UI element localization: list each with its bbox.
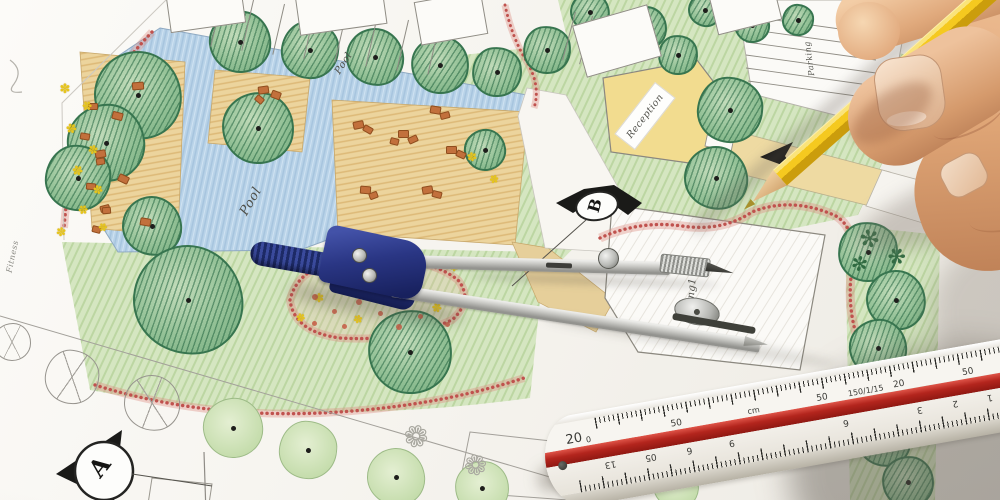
tree-center-dot bbox=[103, 140, 109, 146]
tree-center-dot bbox=[372, 54, 377, 59]
tree-center-dot bbox=[393, 474, 398, 479]
tree-outline-icon bbox=[121, 372, 183, 434]
tree-center-dot bbox=[479, 485, 484, 490]
tree-center-dot bbox=[230, 425, 235, 430]
yellow-flower-icon: ✽ bbox=[55, 225, 67, 239]
ruler-scale-number: 9 bbox=[728, 437, 735, 448]
tree-center-dot bbox=[255, 125, 260, 130]
furniture-icon bbox=[431, 190, 442, 199]
tree-center-dot bbox=[702, 7, 707, 12]
tree-outline-icon bbox=[0, 323, 31, 361]
tree-center-dot bbox=[893, 297, 898, 302]
ruler-scale-number: 6 bbox=[842, 417, 849, 428]
yellow-flower-icon: ✽ bbox=[292, 311, 306, 325]
white-flower-icon: ❁ bbox=[400, 420, 432, 455]
white-flower-icon: ❁ bbox=[462, 450, 490, 482]
pencil-lead-tip bbox=[742, 199, 756, 212]
flowerbed-dot bbox=[342, 324, 347, 329]
tree-center-dot bbox=[307, 47, 312, 52]
furniture-icon bbox=[362, 124, 374, 135]
tree-icon bbox=[781, 3, 816, 38]
tree-center-dot bbox=[587, 9, 593, 15]
flowerbed-dot bbox=[312, 321, 317, 326]
compass-leg-slot bbox=[546, 263, 572, 269]
tree-center-dot bbox=[437, 62, 443, 68]
flowerbed-dot bbox=[332, 309, 337, 314]
ruler-scale-number: 50 bbox=[670, 418, 683, 430]
furniture-icon bbox=[368, 191, 379, 201]
ruler-scale-number: cm bbox=[747, 405, 761, 416]
tree-icon bbox=[694, 74, 766, 146]
yellow-flower-icon: ✽ bbox=[351, 313, 363, 326]
compass-adjust-screw bbox=[598, 248, 619, 269]
yellow-flower-icon: ✽ bbox=[487, 173, 499, 186]
ruler-scale-number: 2 bbox=[951, 398, 958, 409]
tree-icon bbox=[470, 45, 525, 100]
tree-center-dot bbox=[407, 349, 412, 354]
ruler-scale-number: 50 bbox=[961, 366, 974, 378]
furniture-icon bbox=[102, 207, 112, 215]
yellow-flower-icon: ✽ bbox=[60, 82, 71, 95]
flowerbed-dot bbox=[445, 322, 450, 327]
tree-center-dot bbox=[135, 92, 140, 97]
tree-center-dot bbox=[795, 17, 800, 22]
ruler-scale-number: 1 bbox=[986, 391, 993, 402]
furniture-icon bbox=[132, 81, 145, 90]
ruler-scale-number: 20 bbox=[565, 430, 584, 448]
furniture-icon bbox=[439, 111, 450, 120]
ruler-scale-number: 6 bbox=[686, 444, 693, 455]
tree-center-dot bbox=[482, 147, 488, 153]
tree-outline-icon bbox=[42, 347, 103, 408]
ruler-scale-number: 05 bbox=[644, 451, 657, 463]
furniture-icon bbox=[257, 85, 269, 94]
tree-center-dot bbox=[713, 175, 718, 180]
ruler-scale-number: 20 bbox=[892, 379, 905, 391]
tree-center-dot bbox=[727, 107, 732, 112]
ruler-scale-number: 0 bbox=[585, 435, 592, 445]
flowerbed-dot bbox=[396, 324, 402, 330]
tree-center-dot bbox=[544, 47, 549, 52]
tree-center-dot bbox=[185, 297, 190, 302]
compass-screw-icon bbox=[352, 248, 367, 263]
compass-screw-icon bbox=[362, 268, 377, 283]
tree-icon bbox=[277, 419, 340, 482]
yellow-flower-icon: ✽ bbox=[466, 150, 478, 164]
tree-icon bbox=[128, 240, 249, 361]
tree-center-dot bbox=[305, 447, 310, 452]
furniture-icon bbox=[389, 137, 400, 146]
photo-scene: ✽✽✽✽✽✽✽✽✽✽✽✽✽✽✽✽✽❁❁✻✻✻ Pool Pool Recepti… bbox=[0, 0, 1000, 500]
tree-center-dot bbox=[494, 69, 499, 74]
ruler-scale-number: 50 bbox=[816, 392, 829, 404]
ruler-scale-number: 13 bbox=[604, 458, 617, 470]
tree-icon bbox=[200, 395, 266, 461]
furniture-icon bbox=[79, 132, 90, 141]
building-roof bbox=[414, 0, 489, 46]
furniture-icon bbox=[398, 130, 409, 138]
index-fingertip bbox=[838, 2, 900, 60]
tree-center-dot bbox=[675, 52, 681, 58]
furniture-icon bbox=[139, 217, 151, 227]
ruler-scale-number: 3 bbox=[916, 404, 923, 415]
tree-center-dot bbox=[875, 345, 880, 350]
